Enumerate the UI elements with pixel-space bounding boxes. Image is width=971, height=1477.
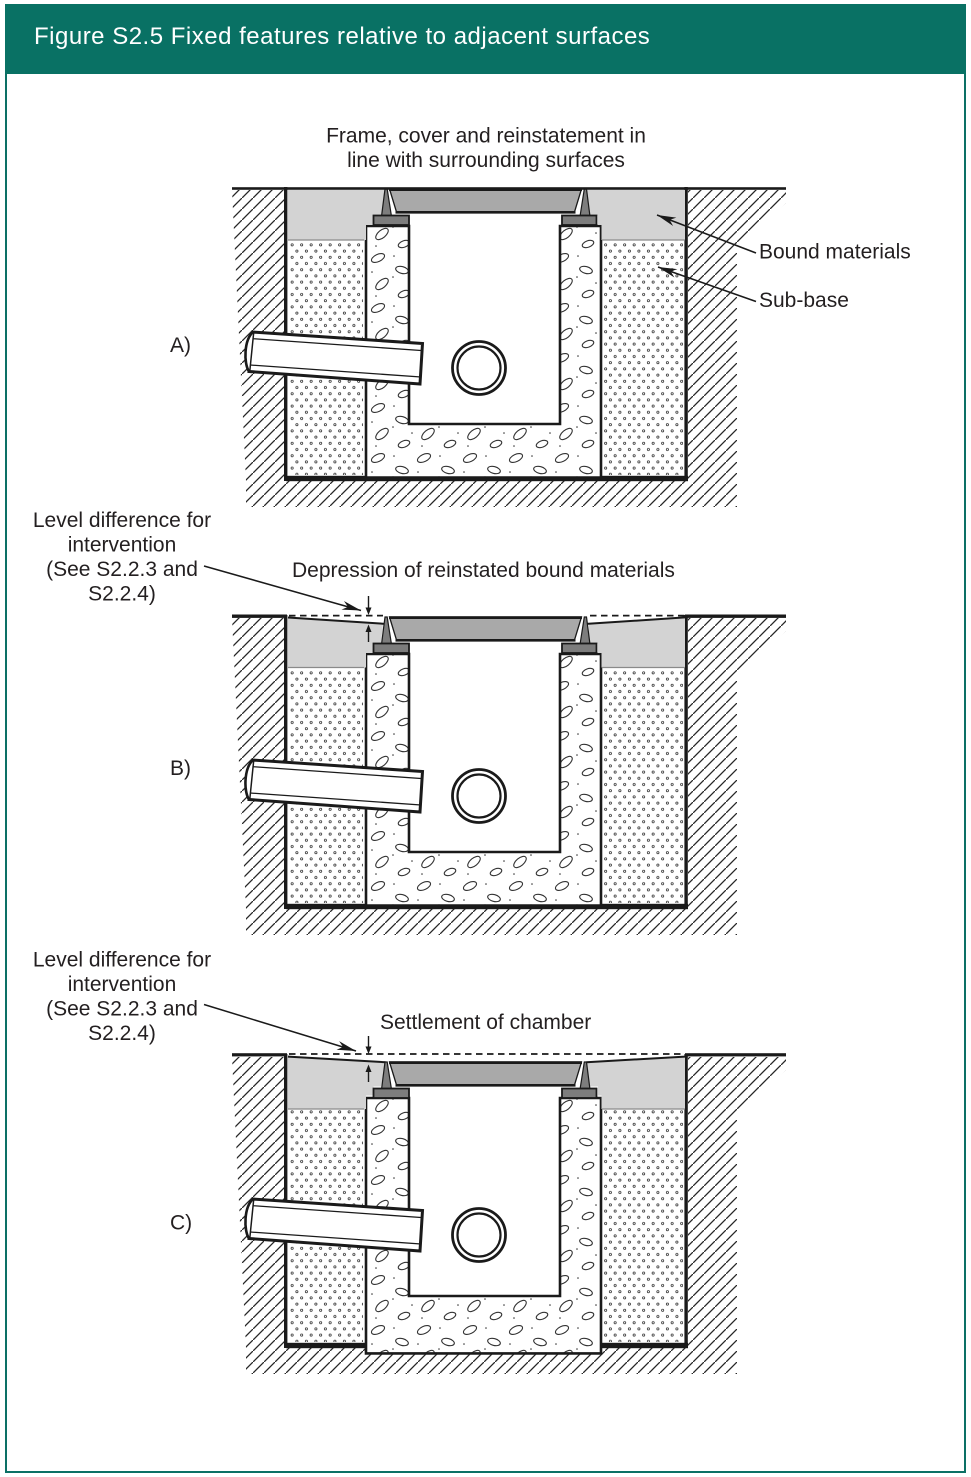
svg-text:S2.2.4): S2.2.4) xyxy=(88,583,156,606)
svg-text:Sub-base: Sub-base xyxy=(759,289,849,312)
svg-text:B): B) xyxy=(170,757,191,780)
svg-text:Level difference for: Level difference for xyxy=(33,949,211,972)
svg-text:Settlement of chamber: Settlement of chamber xyxy=(380,1011,591,1034)
svg-text:S2.2.4): S2.2.4) xyxy=(88,1022,156,1045)
svg-text:intervention: intervention xyxy=(68,973,177,996)
svg-text:Frame, cover and reinstatement: Frame, cover and reinstatement in xyxy=(326,125,646,148)
svg-text:Level difference for: Level difference for xyxy=(33,509,211,532)
svg-text:line with surrounding surfaces: line with surrounding surfaces xyxy=(347,149,625,172)
svg-text:C): C) xyxy=(170,1212,192,1235)
svg-text:A): A) xyxy=(170,334,191,357)
svg-text:(See S2.2.3 and: (See S2.2.3 and xyxy=(46,558,198,581)
svg-text:intervention: intervention xyxy=(68,534,177,557)
svg-text:Depression of reinstated bound: Depression of reinstated bound materials xyxy=(292,559,675,582)
svg-text:(See S2.2.3 and: (See S2.2.3 and xyxy=(46,998,198,1021)
svg-text:Bound materials: Bound materials xyxy=(759,241,911,264)
